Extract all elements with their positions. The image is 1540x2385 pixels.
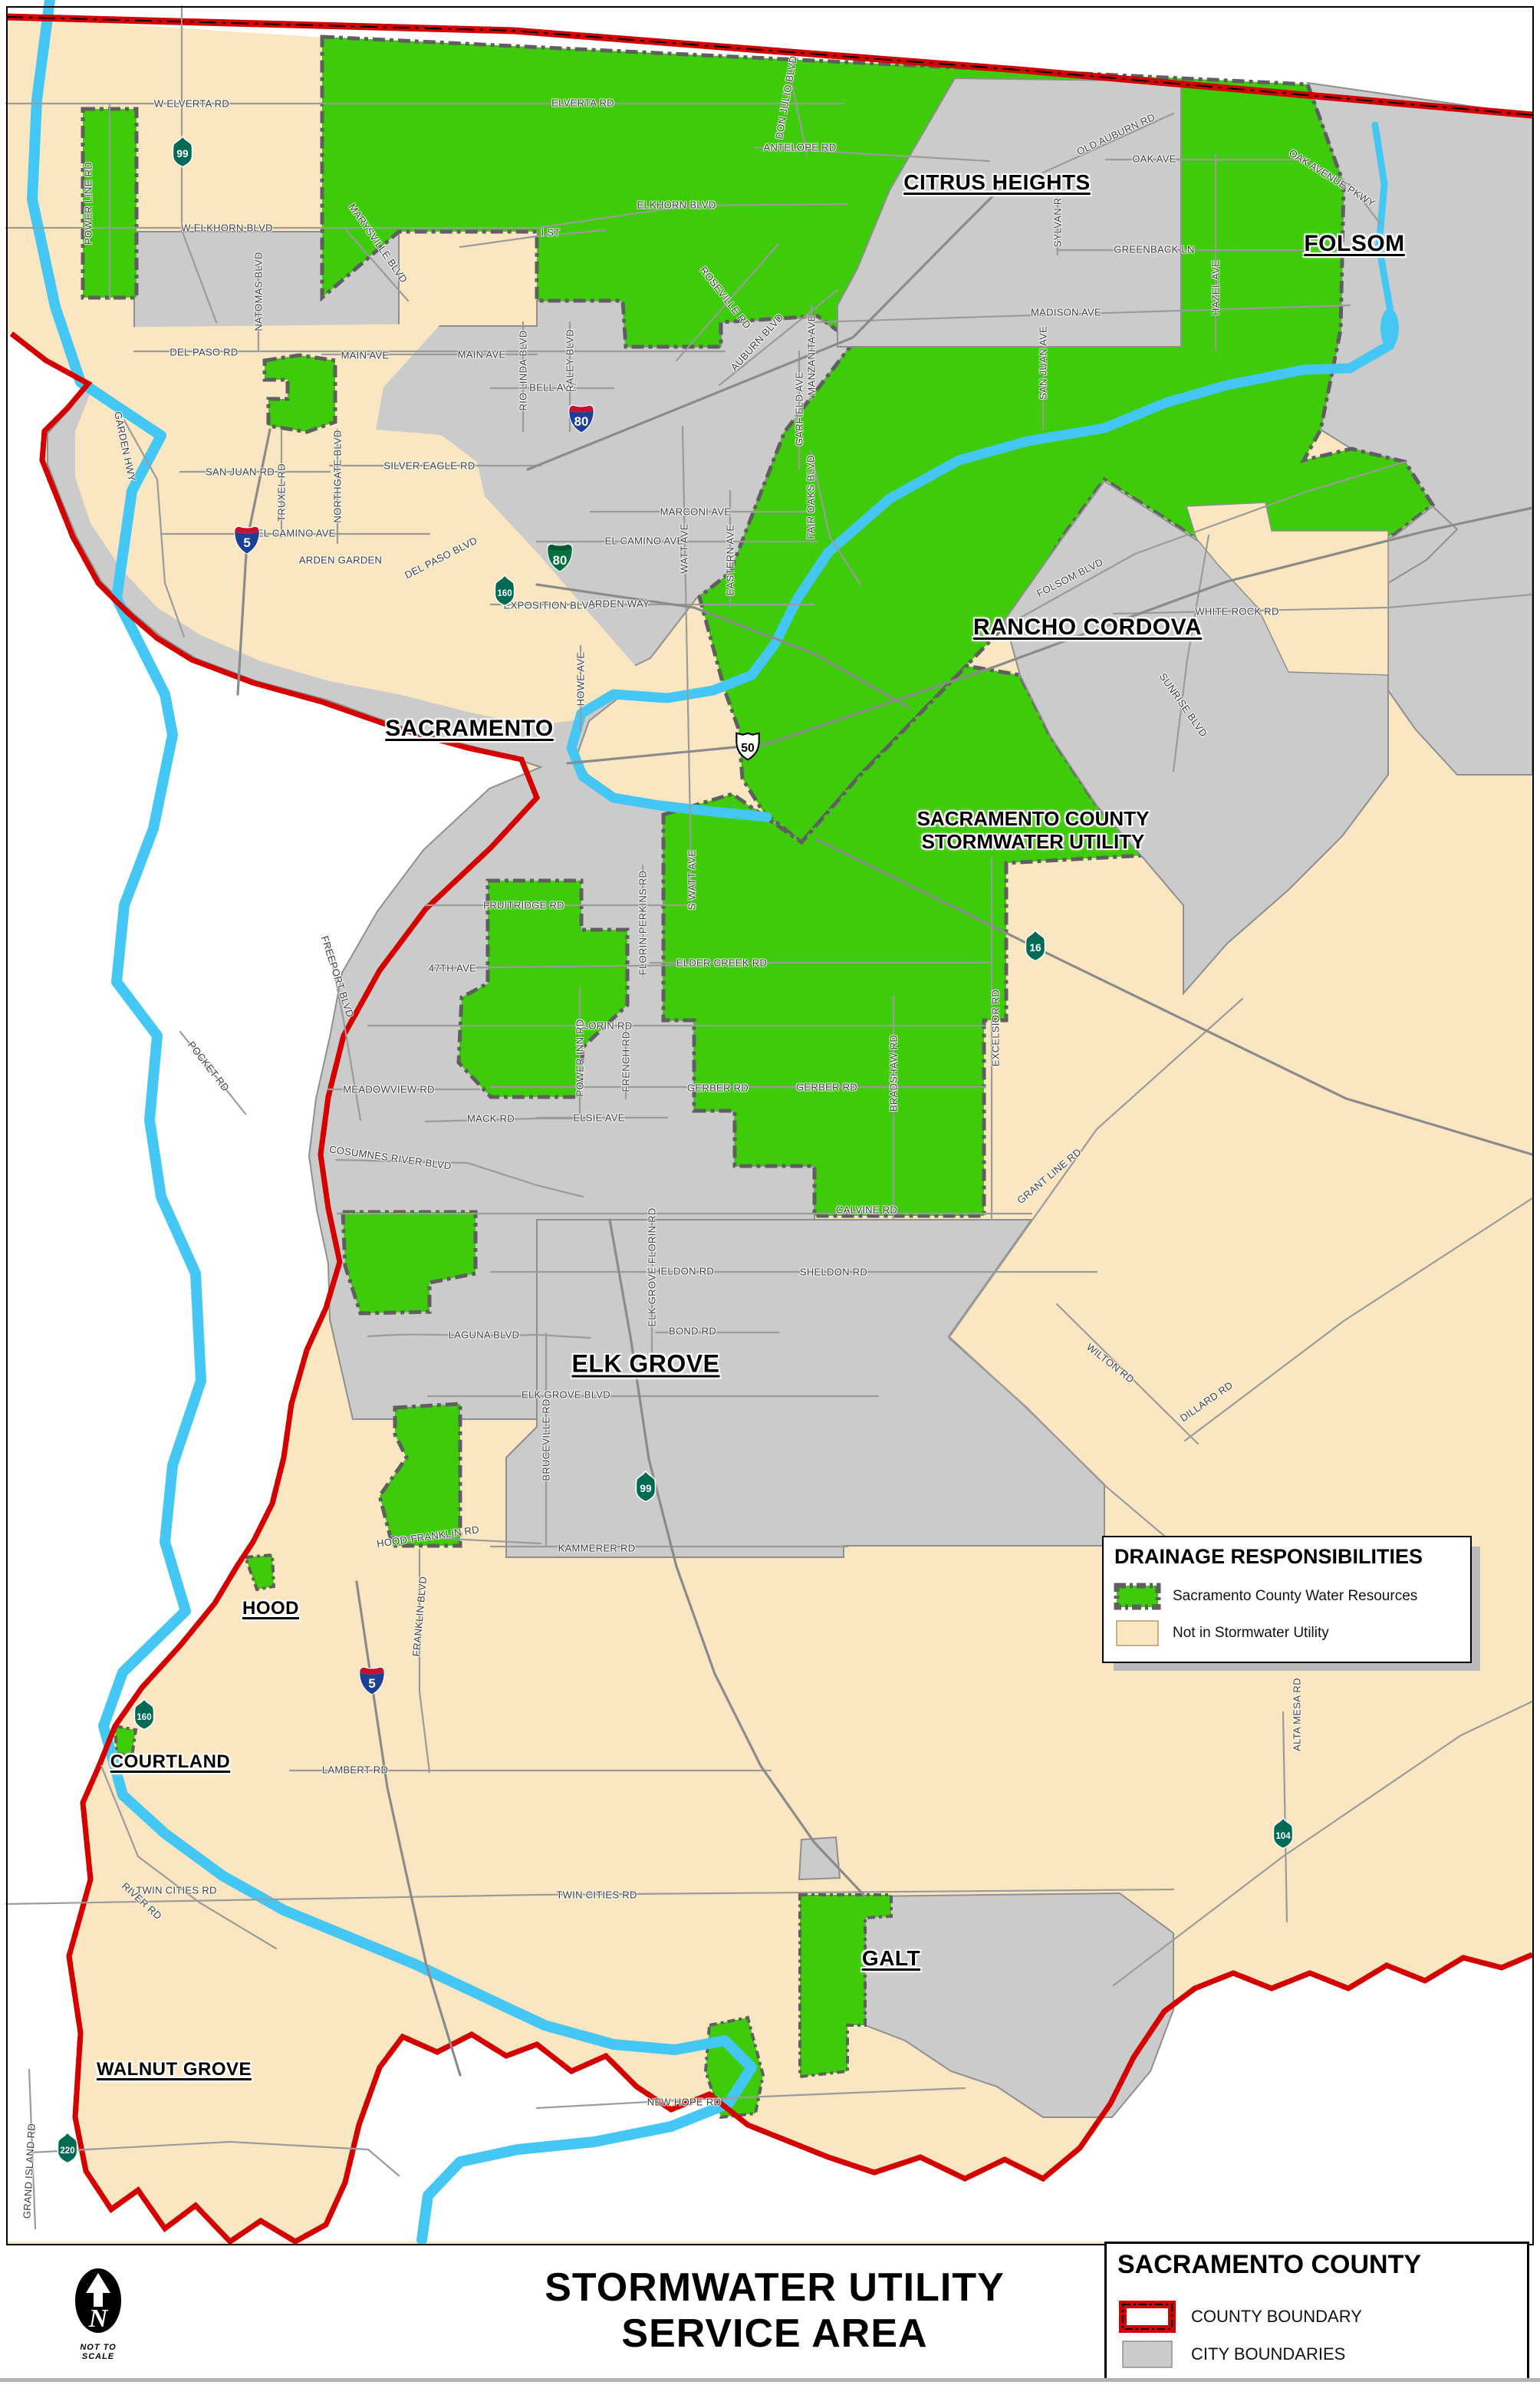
road-label: BOND RD	[669, 1326, 716, 1337]
county-legend-label-cities: CITY BOUNDARIES	[1191, 2344, 1345, 2364]
road-label: SYLVAN RD	[1052, 190, 1064, 247]
area-label-line1: SACRAMENTO COUNTY	[917, 807, 1150, 830]
business-route-shield: 80	[545, 541, 574, 577]
road-label: TRUXEL RD	[276, 463, 288, 522]
road-label: POWER INN RD	[574, 1019, 586, 1096]
svg-text:16: 16	[1029, 942, 1041, 954]
road-label: FRENCH RD	[620, 1031, 632, 1092]
road-label: FRUITRIDGE RD	[483, 900, 564, 911]
not-to-scale-caption: NOT TO SCALE	[67, 2343, 129, 2361]
svg-text:5: 5	[368, 1676, 375, 1691]
city-label: GALT	[862, 1946, 920, 1971]
us-route-shield: 50	[732, 730, 763, 766]
interstate-shield: 5	[357, 1664, 387, 1700]
road-label: ARDEN WAY	[588, 598, 650, 610]
north-arrow-icon: N	[67, 2267, 129, 2337]
state-route-shield: 160	[130, 1698, 158, 1734]
road-label: ELK GROVE-FLORIN RD	[647, 1207, 658, 1326]
stormwater-utility-area-label: SACRAMENTO COUNTY STORMWATER UTILITY	[917, 807, 1150, 853]
road-label: KAMMERER RD	[558, 1543, 636, 1554]
road-label: SAN JUAN AVE	[1038, 326, 1049, 400]
drainage-legend-label-not-in: Not in Stormwater Utility	[1173, 1625, 1329, 1642]
road-label: SILVER EAGLE RD	[383, 460, 475, 472]
city-label: FOLSOM	[1304, 231, 1404, 257]
road-label: ANTELOPE RD	[763, 142, 836, 153]
road-label: GERBER RD	[796, 1082, 857, 1093]
road-label: TWIN CITIES RD	[136, 1885, 216, 1896]
county-legend-title: SACRAMENTO COUNTY	[1117, 2250, 1527, 2280]
road-label: MACK RD	[467, 1113, 515, 1125]
road-label: ARDEN GARDEN	[299, 555, 382, 566]
road-label: BRUCEVILLE RD	[541, 1398, 552, 1481]
city-label: RANCHO CORDOVA	[973, 614, 1202, 641]
road-label: NATOMAS BLVD	[253, 252, 265, 331]
map-title-line2: SERVICE AREA	[399, 2311, 1150, 2357]
city-boundaries-swatch	[1117, 2339, 1177, 2370]
state-route-shield: 99	[169, 136, 196, 172]
svg-text:160: 160	[137, 1713, 151, 1722]
road-label: MEADOWVIEW RD	[343, 1084, 434, 1095]
area-label-line2: STORMWATER UTILITY	[917, 830, 1150, 853]
state-route-shield: 104	[1269, 1817, 1297, 1853]
road-label: RIO LINDA BLVD	[518, 330, 529, 410]
road-label: POWER LINE RD	[83, 162, 94, 245]
road-label: FAIR OAKS BLVD	[805, 455, 817, 539]
drainage-legend-label-utility: Sacramento County Water Resources	[1173, 1588, 1417, 1605]
road-label: EXCELSIOR RD	[990, 990, 1002, 1066]
road-label: NEW HOPE RD	[647, 2097, 721, 2108]
road-label: ELDER CREEK RD	[676, 957, 767, 969]
road-label: WATT AVE	[679, 523, 690, 573]
green-swatch	[1113, 1582, 1162, 1611]
road-label: LAGUNA BLVD	[449, 1329, 520, 1341]
road-label: W ELKHORN BLVD	[181, 222, 273, 234]
road-label: LAMBERT RD	[322, 1764, 388, 1776]
svg-text:104: 104	[1275, 1832, 1291, 1841]
city-label: COURTLAND	[110, 1751, 230, 1773]
drainage-legend: DRAINAGE RESPONSIBILITIES Sacramento Cou…	[1102, 1536, 1472, 1663]
city-label: CITRUS HEIGHTS	[903, 170, 1090, 195]
county-legend-row-boundary: COUNTY BOUNDARY	[1117, 2299, 1362, 2334]
interstate-shield: 5	[232, 523, 262, 559]
north-arrow: N NOT TO SCALE	[67, 2267, 129, 2361]
road-label: GARFIELD AVE	[794, 372, 805, 446]
county-boundary-swatch	[1117, 2299, 1177, 2334]
svg-text:5: 5	[243, 535, 250, 550]
road-label: MANZANITA AVE	[806, 315, 818, 395]
drainage-legend-row-not-in: Not in Stormwater Utility	[1113, 1619, 1329, 1648]
state-route-shield: 99	[632, 1471, 660, 1507]
north-arrow-n: N	[88, 2304, 109, 2333]
road-label: SHELDON RD	[800, 1267, 867, 1278]
road-label: S WATT AVE	[686, 850, 698, 910]
road-label: GREENBACK LN	[1114, 244, 1194, 255]
road-label: ALTA MESA RD	[1292, 1678, 1303, 1751]
city-label: SACRAMENTO	[385, 716, 553, 742]
road-label: NORTHGATE BLVD	[332, 430, 344, 522]
road-label: OAK AVE	[1132, 153, 1176, 165]
svg-text:80: 80	[553, 553, 568, 568]
city-label: ELK GROVE	[572, 1350, 720, 1379]
city-label: HOOD	[242, 1598, 299, 1619]
svg-text:50: 50	[741, 742, 755, 755]
road-label: ELVERTA RD	[551, 97, 614, 109]
state-route-shield: 160	[491, 575, 518, 611]
road-label: MARCONI AVE	[660, 506, 732, 518]
road-label: HOWE AVE	[575, 652, 587, 707]
svg-text:160: 160	[497, 589, 512, 598]
road-label: FLORIN-PERKINS RD	[637, 871, 649, 976]
map-frame	[6, 6, 1534, 2245]
state-route-shield: 16	[1022, 930, 1049, 966]
road-label: EASTERN AVE	[725, 525, 736, 596]
svg-text:99: 99	[640, 1483, 652, 1494]
svg-text:99: 99	[176, 148, 189, 160]
interstate-shield: 80	[567, 402, 596, 438]
drainage-legend-title: DRAINAGE RESPONSIBILITIES	[1114, 1545, 1470, 1569]
bottom-rule	[0, 2378, 1540, 2382]
road-label: HAZEL AVE	[1210, 260, 1222, 315]
road-label: MADISON AVE	[1031, 307, 1101, 318]
city-label: WALNUT GROVE	[97, 2059, 252, 2080]
road-label: MAIN AVE	[458, 349, 506, 361]
county-legend-label-boundary: COUNTY BOUNDARY	[1191, 2307, 1362, 2327]
road-label: ELKHORN BLVD	[637, 199, 716, 211]
road-label: EL CAMINO AVE	[605, 535, 684, 547]
road-label: TWIN CITIES RD	[556, 1889, 637, 1901]
road-label: SAN JUAN RD	[206, 466, 275, 478]
road-label: I ST	[541, 227, 560, 239]
road-label: CALVINE RD	[836, 1204, 897, 1216]
county-legend-row-cities: CITY BOUNDARIES	[1117, 2339, 1345, 2370]
map-page: W ELVERTA RDELVERTA RDANTELOPE RDOAK AVE…	[0, 0, 1540, 2385]
state-route-shield: 220	[54, 2132, 81, 2168]
road-label: BRADSHAW RD	[888, 1035, 900, 1112]
road-label: RALEY BLVD	[564, 329, 576, 392]
drainage-legend-row-utility: Sacramento County Water Resources	[1113, 1582, 1417, 1611]
road-label: DEL PASO RD	[169, 347, 238, 358]
tan-swatch	[1113, 1619, 1162, 1648]
map-title-line1: STORMWATER UTILITY	[399, 2265, 1150, 2311]
county-legend: SACRAMENTO COUNTY COUNTY BOUNDARY CITY B…	[1104, 2242, 1529, 2381]
road-label: WHITE ROCK RD	[1195, 606, 1278, 618]
road-label: MAIN AVE	[341, 350, 390, 361]
road-label: 47TH AVE	[429, 963, 476, 974]
road-label: ELSIE AVE	[573, 1112, 625, 1124]
road-label: ELK GROVE BLVD	[522, 1389, 610, 1401]
map-title: STORMWATER UTILITY SERVICE AREA	[399, 2265, 1150, 2357]
road-label: W ELVERTA RD	[154, 98, 229, 110]
road-label: GERBER RD	[687, 1082, 749, 1094]
svg-text:80: 80	[574, 414, 589, 429]
svg-text:220: 220	[60, 2146, 74, 2156]
